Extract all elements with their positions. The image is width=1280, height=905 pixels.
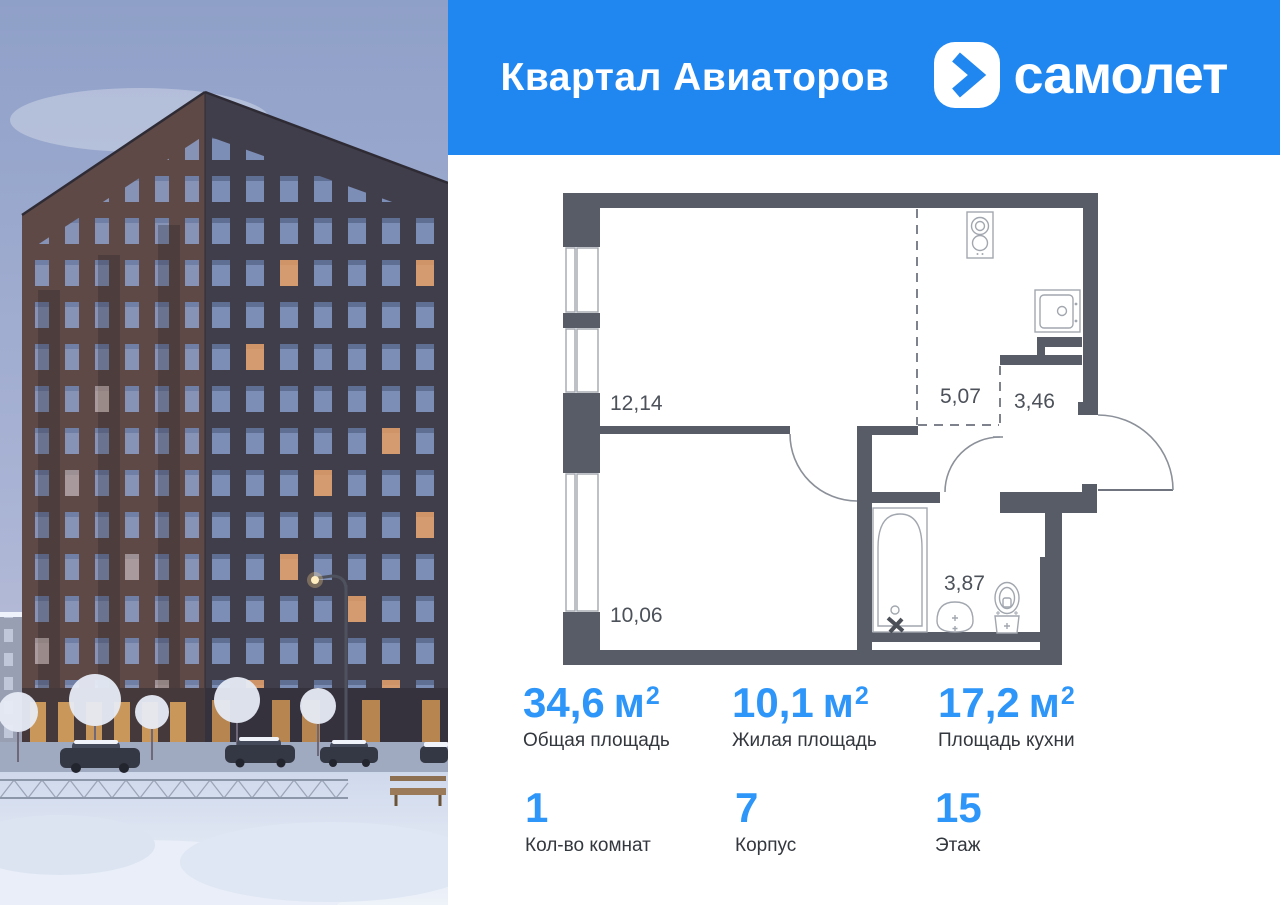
room-area-bathroom: 3,87 bbox=[944, 572, 985, 595]
room-count-label: Кол-во комнат bbox=[525, 835, 651, 858]
building-photo bbox=[0, 0, 448, 905]
floor-number-label: Этаж bbox=[935, 835, 980, 858]
toilet-icon bbox=[995, 583, 1019, 634]
stove-icon bbox=[967, 212, 993, 258]
brand-name: самолет bbox=[1014, 48, 1228, 108]
total-area-label: Общая площадь bbox=[523, 730, 670, 753]
room-area-hallway: 3,46 bbox=[1014, 390, 1055, 413]
floor-plan: 12,14 5,07 3,46 10,06 3,87 bbox=[540, 185, 1200, 680]
wall-top bbox=[563, 193, 1098, 208]
bathroom-door-arc bbox=[945, 437, 1003, 492]
header: Квартал Авиаторов самолет bbox=[448, 0, 1280, 155]
room-area-kitchen-niche: 5,07 bbox=[940, 385, 981, 408]
living-area-value: 10,1м2 bbox=[732, 682, 868, 724]
room-door-arc bbox=[790, 434, 857, 501]
building-number-value: 7 bbox=[735, 787, 758, 829]
building-number-label: Корпус bbox=[735, 835, 796, 858]
wall-room-divider bbox=[598, 426, 790, 434]
room-area-bedroom: 10,06 bbox=[610, 604, 663, 627]
wall-bottom bbox=[563, 650, 1062, 665]
room-area-kitchen-living: 12,14 bbox=[610, 392, 663, 415]
wall-bathroom-left bbox=[857, 426, 872, 650]
samolet-plane-icon bbox=[934, 42, 1000, 113]
building-photo-art bbox=[0, 0, 448, 905]
brand-logo: самолет bbox=[934, 42, 1228, 113]
kitchen-sink-icon bbox=[1035, 290, 1080, 332]
washbasin-icon bbox=[937, 602, 973, 632]
total-area-value: 34,6м2 bbox=[523, 682, 659, 724]
apartment-card: Квартал Авиаторов самолет bbox=[448, 0, 1280, 905]
wall-right bbox=[1083, 193, 1098, 415]
floor-number-value: 15 bbox=[935, 787, 982, 829]
kitchen-area-label: Площадь кухни bbox=[938, 730, 1075, 753]
project-title: Квартал Авиаторов bbox=[501, 56, 890, 100]
room-count-value: 1 bbox=[525, 787, 548, 829]
kitchen-area-value: 17,2м2 bbox=[938, 682, 1074, 724]
bathtub-icon bbox=[873, 508, 927, 632]
entrance-door-arc bbox=[1098, 415, 1173, 490]
living-area-label: Жилая площадь bbox=[732, 730, 877, 753]
wall-hallway-niche bbox=[1000, 355, 1082, 365]
